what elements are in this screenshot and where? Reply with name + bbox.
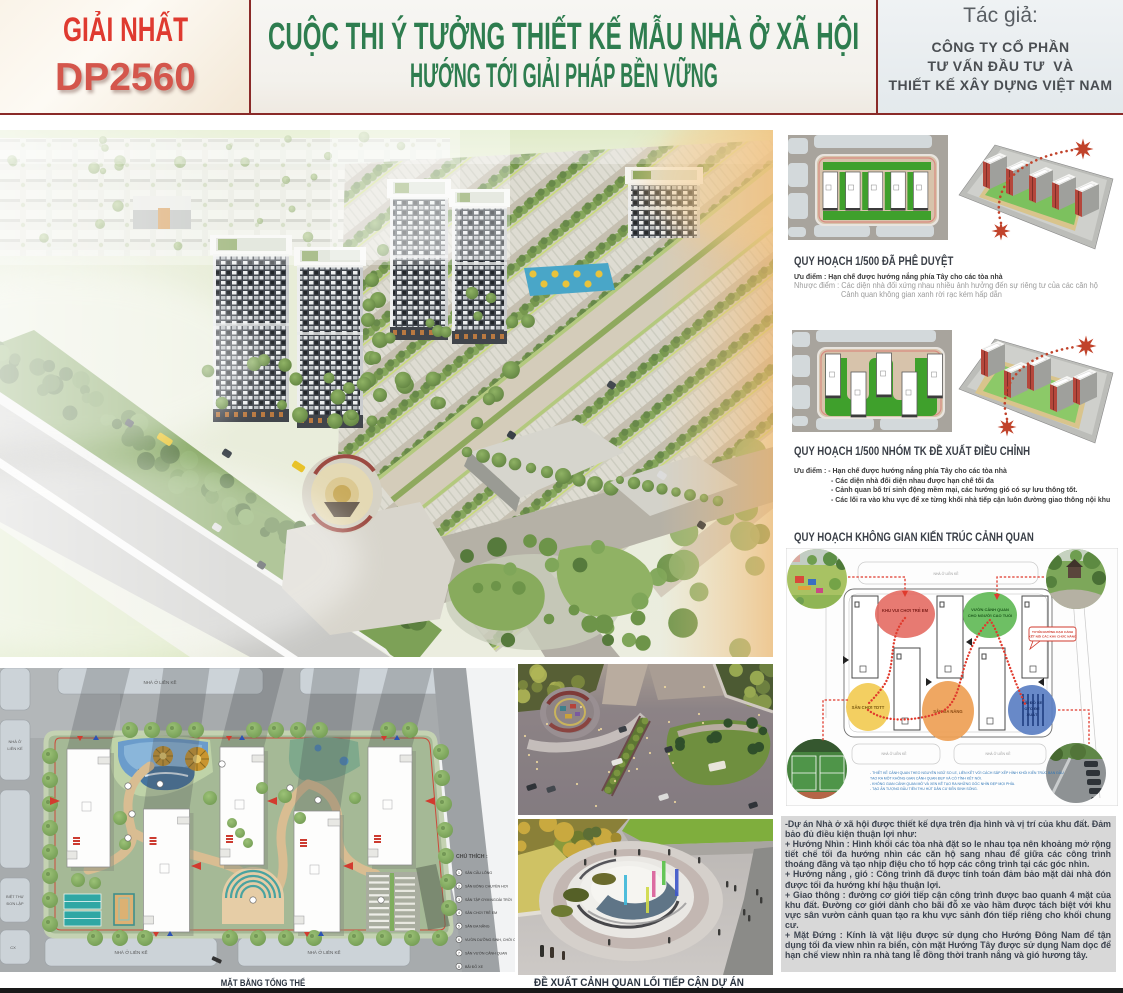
svg-text:NHÀ Ở: NHÀ Ở (9, 739, 23, 744)
svg-text:SÂN ĐA NĂNG: SÂN ĐA NĂNG (465, 925, 490, 929)
svg-text:LIÊN KẾ: LIÊN KẾ (7, 746, 23, 751)
svg-text:CHO NGƯỜI CAO TUỔI: CHO NGƯỜI CAO TUỔI (968, 613, 1013, 618)
svg-text:- TẠO ẤN TƯỢNG ĐẦU TIÊN THU HÚ: - TẠO ẤN TƯỢNG ĐẦU TIÊN THU HÚT DÂN CƯ Đ… (870, 786, 978, 791)
svg-text:NHÀ Ở LIỀN KỀ: NHÀ Ở LIỀN KỀ (882, 751, 908, 756)
svg-text:ĐƠN LẬP: ĐƠN LẬP (7, 901, 24, 906)
svg-text:TUYẾN ĐƯỜNG DẠO CẢNH: TUYẾN ĐƯỜNG DẠO CẢNH (1032, 629, 1074, 634)
svg-text:- THIẾT KẾ CẢNH QUAN THEO NGUY: - THIẾT KẾ CẢNH QUAN THEO NGUYÊN NGỮ SO … (870, 770, 1064, 775)
svg-text:- KHÔNG GIAN CẢNH QUAN MỞ VÀ X: - KHÔNG GIAN CẢNH QUAN MỞ VÀ XEN KẼ TẠO … (870, 781, 1015, 786)
svg-text:5: 5 (458, 925, 460, 929)
svg-text:CHÚ THÍCH :: CHÚ THÍCH : (456, 852, 488, 860)
svg-text:CX: CX (10, 945, 16, 950)
svg-text:XUẤT: XUẤT (1027, 712, 1038, 717)
svg-text:NHÀ Ở LIỀN KỀ: NHÀ Ở LIỀN KỀ (934, 571, 960, 576)
svg-text:NHÀ Ở LIỀN KỀ: NHÀ Ở LIỀN KỀ (986, 751, 1012, 756)
svg-text:6: 6 (458, 938, 460, 942)
svg-text:KẾT NỐI CÁC KHU CHỨC NĂNG: KẾT NỐI CÁC KHU CHỨC NĂNG (1029, 634, 1077, 639)
svg-text:4: 4 (458, 911, 460, 915)
svg-text:SÂN CẦU LÔNG: SÂN CẦU LÔNG (465, 870, 492, 875)
svg-text:OTO ĐỀ: OTO ĐỀ (1024, 706, 1040, 711)
svg-text:VƯỜN CẢNH QUAN: VƯỜN CẢNH QUAN (971, 607, 1009, 612)
svg-text:TẠO RA MỘT KHÔNG GIAN CẢNH QUA: TẠO RA MỘT KHÔNG GIAN CẢNH QUAN ĐẸP VÀ C… (870, 775, 982, 780)
svg-text:SÂN BÓNG CHUYỀN HƠI: SÂN BÓNG CHUYỀN HƠI (465, 883, 508, 888)
svg-text:7: 7 (458, 951, 460, 955)
svg-text:BÃI ĐỖ XE: BÃI ĐỖ XE (465, 964, 484, 969)
svg-text:NHÀ Ở LIÊN KẾ: NHÀ Ở LIÊN KẾ (307, 948, 340, 955)
svg-text:VƯỜN DƯỠNG SINH, CHỜI CỜ: VƯỜN DƯỠNG SINH, CHỜI CỜ (465, 937, 515, 942)
svg-text:SÂN CHƠI TRẺ EM: SÂN CHƠI TRẺ EM (465, 910, 497, 915)
svg-text:KHU VUI CHƠI TRẺ EM: KHU VUI CHƠI TRẺ EM (882, 608, 929, 613)
svg-text:SÂN TẬP GYM NGOÀI TRỜI: SÂN TẬP GYM NGOÀI TRỜI (465, 897, 512, 902)
svg-text:BIỆT THỰ: BIỆT THỰ (6, 894, 24, 899)
svg-text:2: 2 (458, 884, 460, 888)
svg-text:3: 3 (458, 898, 460, 902)
svg-text:8: 8 (458, 965, 460, 969)
svg-text:1: 1 (458, 871, 460, 875)
svg-text:SÂN VƯỜN CẢNH QUAN: SÂN VƯỜN CẢNH QUAN (465, 950, 507, 955)
svg-text:SÂN ĐA NĂNG: SÂN ĐA NĂNG (933, 709, 962, 714)
svg-text:NHÀ Ở LIÊN KẾ: NHÀ Ở LIÊN KẾ (114, 948, 147, 955)
